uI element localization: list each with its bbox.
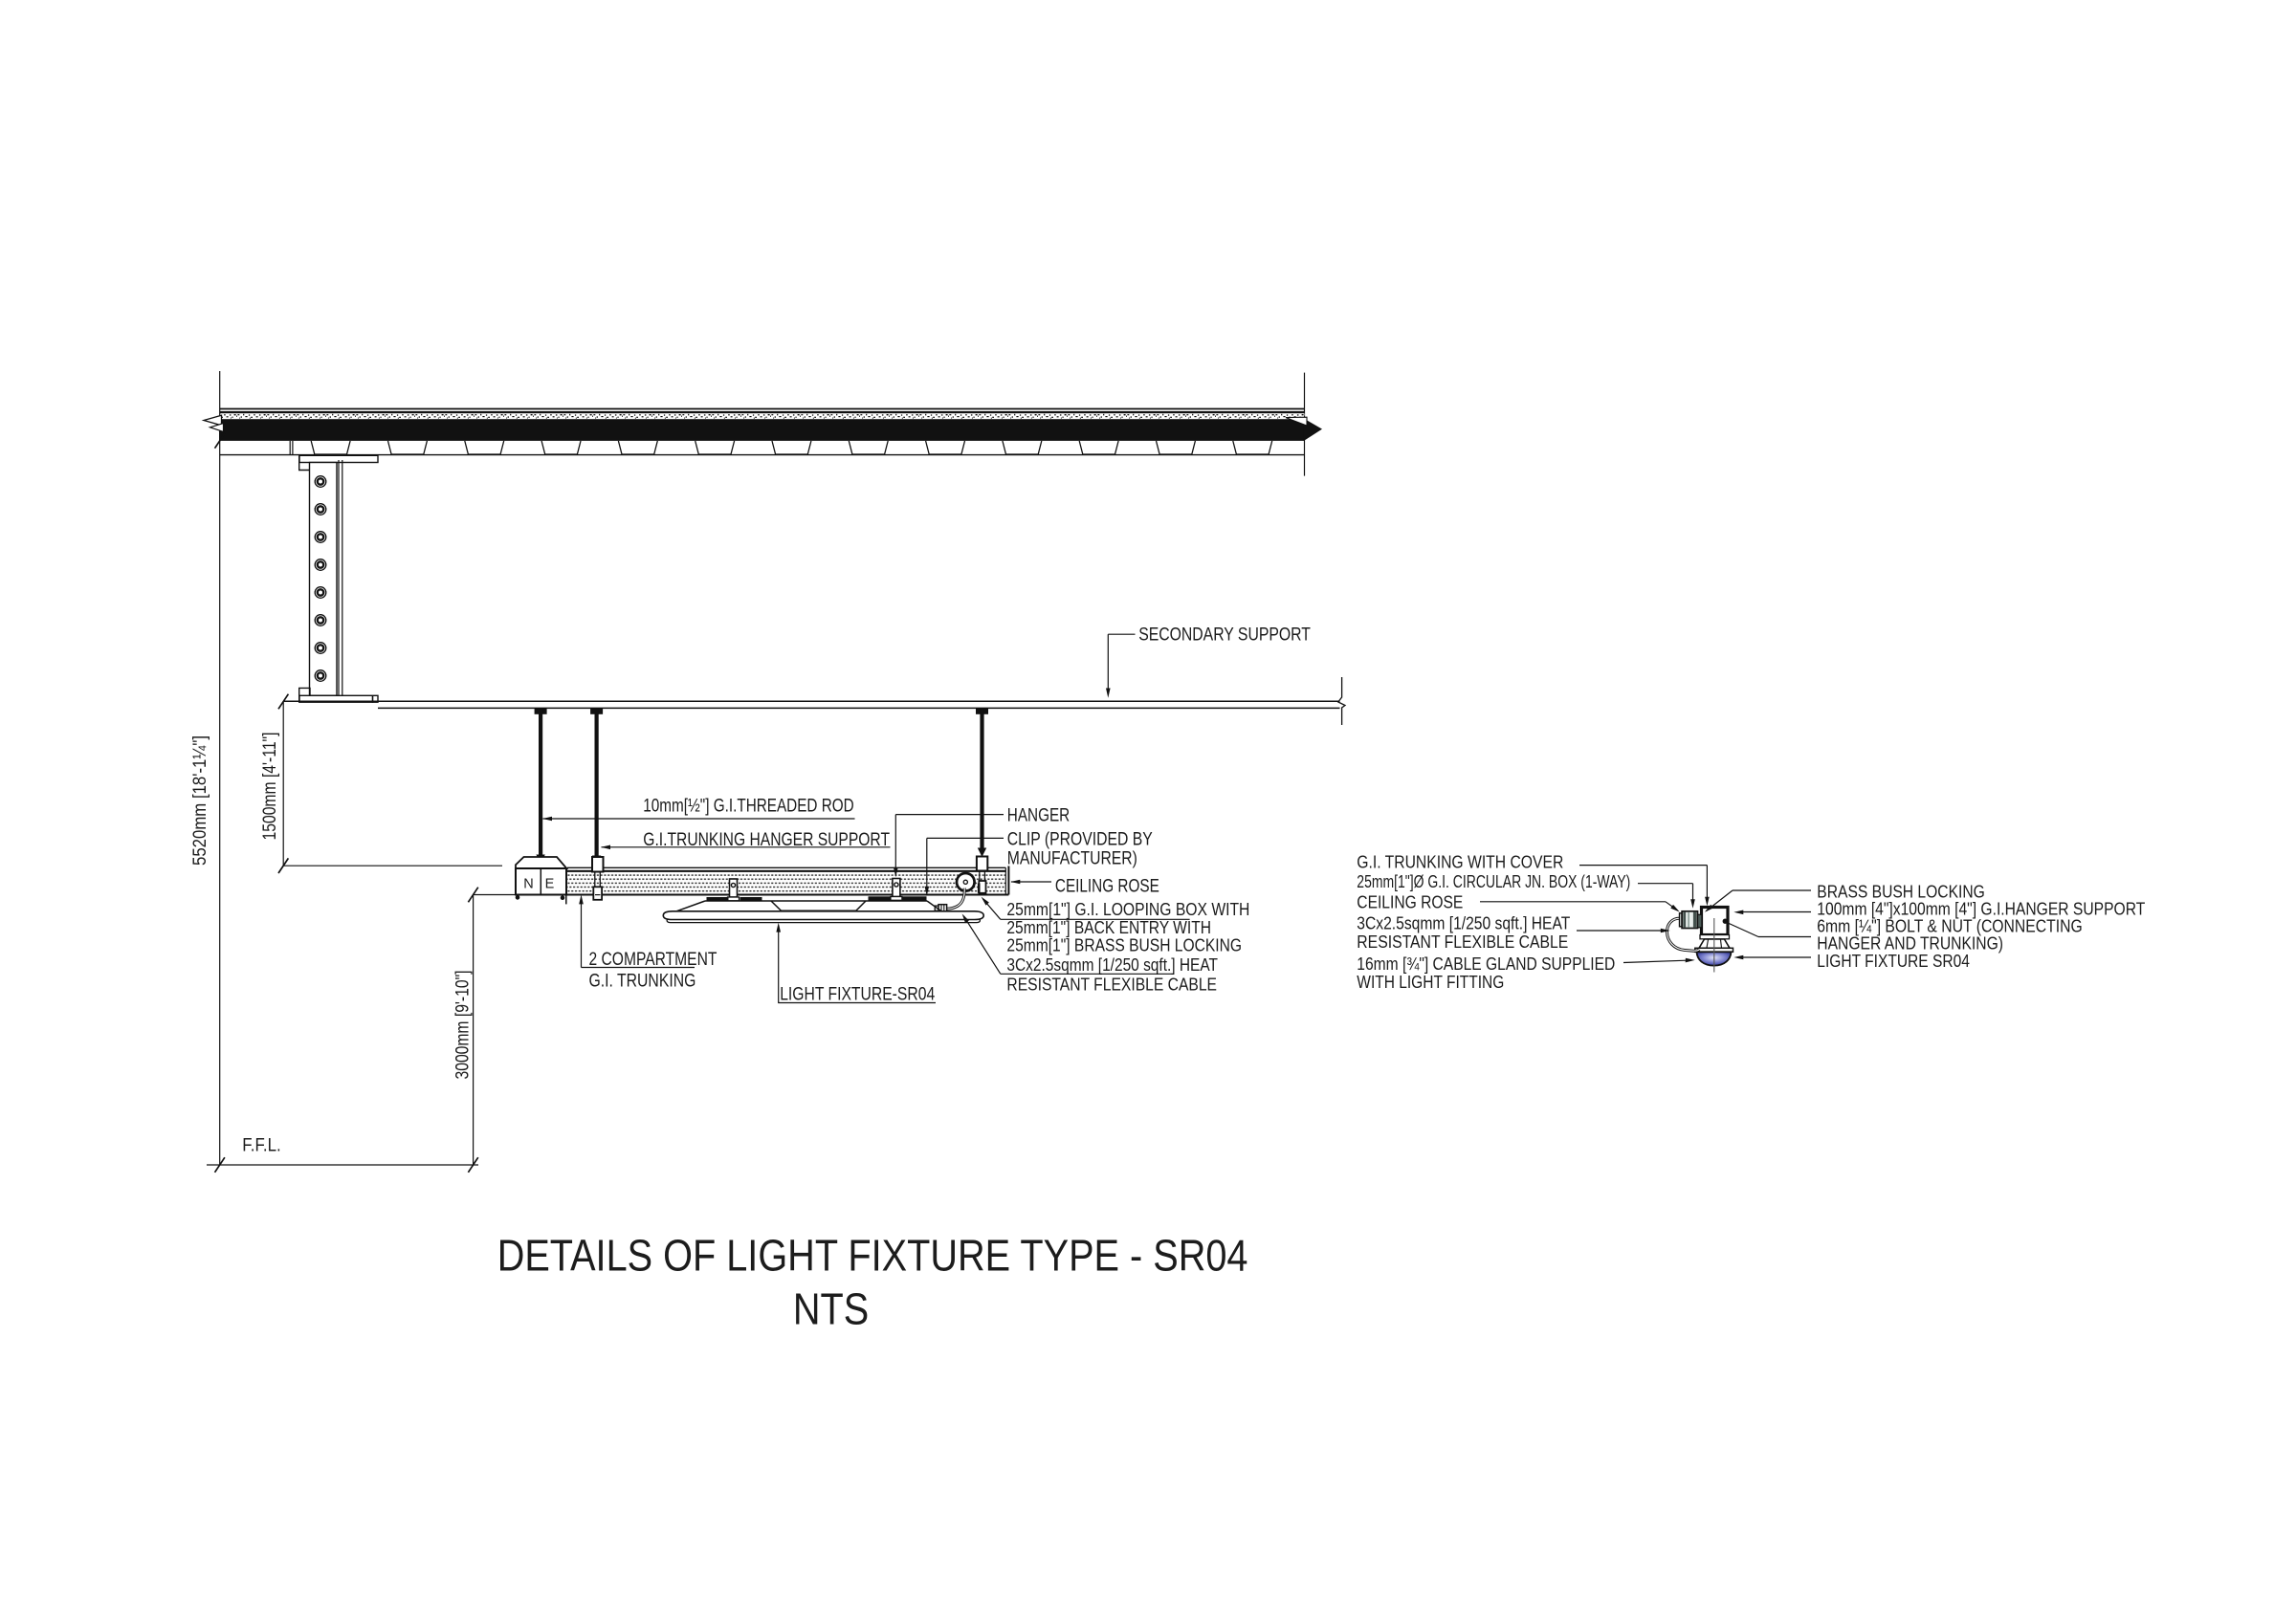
svg-text:3Cx2.5sqmm [1/250 sqft.] HEAT: 3Cx2.5sqmm [1/250 sqft.] HEAT [1006,955,1218,975]
svg-text:CEILING ROSE: CEILING ROSE [1357,893,1463,912]
svg-text:E: E [545,877,555,892]
svg-text:3Cx2.5sqmm [1/250 sqft.] HEAT: 3Cx2.5sqmm [1/250 sqft.] HEAT [1357,914,1570,933]
svg-text:25mm[1"] BACK ENTRY WITH: 25mm[1"] BACK ENTRY WITH [1006,918,1211,937]
svg-text:6mm [¼"] BOLT & NUT (CONNECTIN: 6mm [¼"] BOLT & NUT (CONNECTING [1817,917,2082,936]
svg-text:5520mm [18'-1¼"]: 5520mm [18'-1¼"] [189,735,210,866]
svg-text:1500mm [4'-11"]: 1500mm [4'-11"] [259,733,280,841]
svg-text:HANGER AND TRUNKING): HANGER AND TRUNKING) [1817,934,2003,954]
svg-text:NTS: NTS [793,1284,869,1334]
svg-text:MANUFACTURER): MANUFACTURER) [1007,848,1137,869]
svg-text:16mm [¾"] CABLE GLAND SUPPLIED: 16mm [¾"] CABLE GLAND SUPPLIED [1357,954,1615,974]
svg-text:DETAILS OF LIGHT FIXTURE TYPE: DETAILS OF LIGHT FIXTURE TYPE - SR04 [497,1231,1248,1281]
svg-text:G.I. TRUNKING: G.I. TRUNKING [589,971,696,992]
svg-text:100mm [4"]x100mm [4"] G.I.HANG: 100mm [4"]x100mm [4"] G.I.HANGER SUPPORT [1817,900,2145,919]
svg-text:2 COMPARTMENT: 2 COMPARTMENT [589,949,717,970]
svg-text:RESISTANT FLEXIBLE CABLE: RESISTANT FLEXIBLE CABLE [1006,976,1217,995]
svg-text:25mm[1"]Ø G.I. CIRCULAR JN. BO: 25mm[1"]Ø G.I. CIRCULAR JN. BOX (1-WAY) [1357,872,1630,891]
svg-text:SECONDARY SUPPORT: SECONDARY SUPPORT [1138,625,1311,646]
svg-text:N: N [523,877,533,892]
svg-text:LIGHT FIXTURE SR04: LIGHT FIXTURE SR04 [1817,952,1970,971]
svg-text:WITH LIGHT FITTING: WITH LIGHT FITTING [1357,973,1504,992]
svg-text:3000mm [9'-10"]: 3000mm [9'-10"] [453,971,474,1080]
svg-text:10mm[½"] G.I.THREADED ROD: 10mm[½"] G.I.THREADED ROD [643,796,853,817]
svg-text:HANGER: HANGER [1007,805,1070,826]
svg-text:LIGHT FIXTURE-SR04: LIGHT FIXTURE-SR04 [780,984,935,1005]
svg-text:F.F.L.: F.F.L. [242,1135,280,1156]
svg-text:CLIP (PROVIDED BY: CLIP (PROVIDED BY [1007,829,1153,850]
svg-text:BRASS BUSH LOCKING: BRASS BUSH LOCKING [1817,883,1985,902]
svg-text:CEILING ROSE: CEILING ROSE [1055,876,1159,897]
svg-text:25mm[1"] BRASS BUSH LOCKING: 25mm[1"] BRASS BUSH LOCKING [1006,936,1242,955]
svg-text:RESISTANT FLEXIBLE CABLE: RESISTANT FLEXIBLE CABLE [1357,932,1568,952]
svg-text:G.I. TRUNKING WITH COVER: G.I. TRUNKING WITH COVER [1357,853,1563,872]
svg-text:25mm[1"] G.I. LOOPING BOX WITH: 25mm[1"] G.I. LOOPING BOX WITH [1006,900,1249,919]
